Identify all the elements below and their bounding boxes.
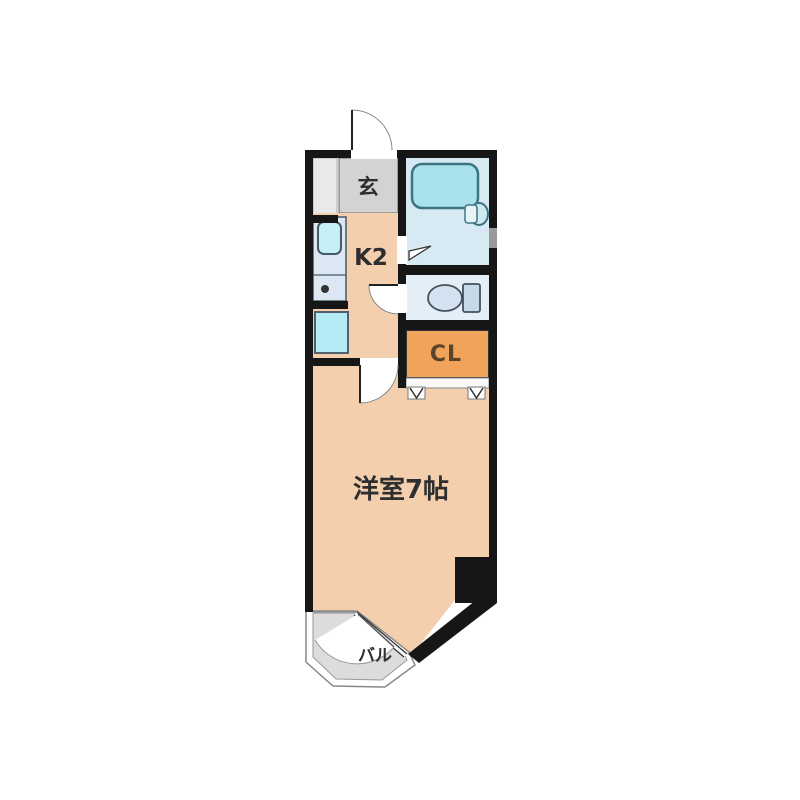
floorplan: 玄 K2 CL 洋室7帖 バル	[0, 0, 800, 800]
stove-burner	[321, 285, 329, 293]
kitchen-label: K2	[354, 245, 388, 271]
pillar	[455, 557, 497, 603]
wall-counter-stub	[305, 301, 348, 309]
toilet-tank	[463, 284, 480, 312]
bathtub	[412, 164, 478, 208]
wall-right	[489, 150, 497, 602]
washer-pan	[315, 312, 348, 353]
pipe-space	[489, 228, 497, 248]
entrance-label: 玄	[358, 175, 379, 199]
floorplan-svg: 玄 K2 CL 洋室7帖 バル	[0, 0, 800, 800]
wall-toilet-closet	[398, 320, 497, 330]
wall-kitchen-room	[305, 358, 360, 366]
bathroom-door-opening	[397, 236, 407, 264]
main-room-label: 洋室7帖	[353, 474, 449, 505]
entrance-opening	[351, 149, 397, 159]
wall-top	[305, 150, 497, 158]
entrance-side-storage	[313, 158, 337, 215]
balcony-label: バル	[358, 646, 392, 666]
wall-genkan-stub	[305, 215, 338, 223]
toilet-bowl	[428, 285, 462, 311]
entrance-door-swing	[352, 110, 392, 150]
wall-bath-toilet	[398, 265, 497, 275]
bath-faucet-panel	[465, 205, 477, 223]
toilet-door-opening	[397, 284, 407, 313]
closet-label: CL	[430, 342, 462, 367]
kitchen-sink	[318, 222, 341, 254]
